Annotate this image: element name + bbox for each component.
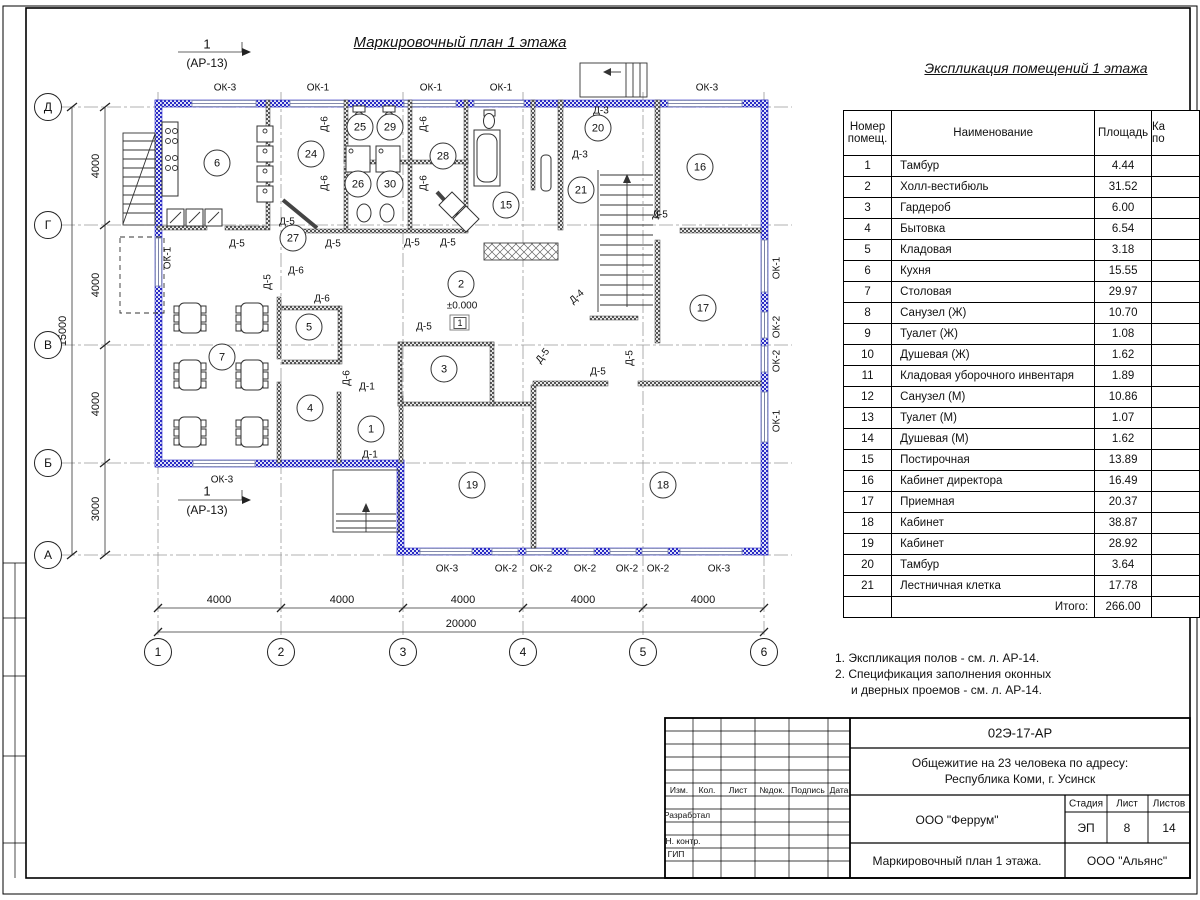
table-cell: 6 <box>844 261 892 282</box>
table-cell: 3 <box>844 198 892 219</box>
table-cell: 1.89 <box>1095 366 1152 387</box>
dim-label: 4000 <box>207 594 231 606</box>
table-row: 13Туалет (М)1.07 <box>844 408 1200 429</box>
door-label: Д-6 <box>320 116 331 132</box>
table-cell <box>1151 597 1199 618</box>
room-marker: 30 <box>377 171 404 198</box>
table-cell <box>1151 387 1199 408</box>
room-marker: 24 <box>298 141 325 168</box>
axis-bubble-col: 4 <box>509 638 537 666</box>
table-cell: 15.55 <box>1095 261 1152 282</box>
stair-21 <box>598 170 653 312</box>
axis-bubble-col: 2 <box>267 638 295 666</box>
org-name: ООО "Феррум" <box>916 813 999 827</box>
room-marker: 16 <box>687 154 714 181</box>
table-cell: 6.00 <box>1095 198 1152 219</box>
table-cell: 1.07 <box>1095 408 1152 429</box>
door-label: Д-5 <box>625 350 636 366</box>
table-cell: Кабинет <box>892 534 1095 555</box>
window-label: ОК-3 <box>214 83 237 94</box>
table-row: 12Санузел (М)10.86 <box>844 387 1200 408</box>
room-schedule-table: Номер помещ.НаименованиеПлощадьКа по1Там… <box>843 110 1200 618</box>
table-cell: Приемная <box>892 492 1095 513</box>
table-cell <box>1151 177 1199 198</box>
table-cell <box>1151 492 1199 513</box>
table-cell: 7 <box>844 282 892 303</box>
table-row: 6Кухня15.55 <box>844 261 1200 282</box>
section-mark-number: 1 <box>203 484 210 499</box>
room-marker: 6 <box>204 150 231 177</box>
axis-bubble-row: Д <box>34 93 62 121</box>
stamp-col-sign: Подпись <box>791 785 825 795</box>
window-label: ОК-1 <box>307 83 330 94</box>
floor-hatch-strip <box>484 243 558 260</box>
axis-bubble-col: 6 <box>750 638 778 666</box>
table-cell <box>1151 555 1199 576</box>
table-cell: Кухня <box>892 261 1095 282</box>
room-marker: 3 <box>431 356 458 383</box>
dim-label: 4000 <box>691 594 715 606</box>
window-label: ОК-2 <box>495 564 518 575</box>
stamp-row-gip: ГИП <box>668 849 685 859</box>
table-cell <box>1151 429 1199 450</box>
door-label: Д-5 <box>263 274 274 290</box>
table-row: 21Лестничная клетка17.78 <box>844 576 1200 597</box>
table-cell: Санузел (Ж) <box>892 303 1095 324</box>
axis-bubble-row: Б <box>34 449 62 477</box>
window-label: ОК-1 <box>772 257 783 280</box>
dim-label: 4000 <box>90 154 102 178</box>
table-cell: 4 <box>844 219 892 240</box>
table-cell: Тамбур <box>892 555 1095 576</box>
window-label: ОК-3 <box>696 83 719 94</box>
table-row: 1Тамбур4.44 <box>844 156 1200 177</box>
window-label: ОК-1 <box>772 410 783 433</box>
room-marker: 26 <box>345 171 372 198</box>
axis-bubble-row: В <box>34 331 62 359</box>
elevation-label: ±0.000 <box>447 301 478 312</box>
sheets-value: 14 <box>1162 821 1175 835</box>
door-label: Д-5 <box>325 239 341 250</box>
stage-label: Стадия <box>1069 799 1103 810</box>
total-label: Итого: <box>892 597 1095 618</box>
table-cell: 14 <box>844 429 892 450</box>
window-label: ОК-3 <box>436 564 459 575</box>
table-row: 14Душевая (М)1.62 <box>844 429 1200 450</box>
table-row: 11Кладовая уборочного инвентаря1.89 <box>844 366 1200 387</box>
table-cell <box>1151 408 1199 429</box>
table-cell: Гардероб <box>892 198 1095 219</box>
table-cell: 21 <box>844 576 892 597</box>
col-header-cut: Ка по <box>1151 111 1199 156</box>
notes: 1. Экспликация полов - см. л. АР-14. 2. … <box>835 650 1051 698</box>
table-cell: 13.89 <box>1095 450 1152 471</box>
axis-bubble-row: Г <box>34 211 62 239</box>
section-mark-number: 1 <box>203 37 210 52</box>
door-label: Д-5 <box>652 210 668 221</box>
room-marker: 15 <box>493 192 520 219</box>
col-header-name: Наименование <box>892 111 1095 156</box>
table-cell: Постирочная <box>892 450 1095 471</box>
note-line: и дверных проемов - см. л. АР-14. <box>835 682 1051 698</box>
door-label: Д-5 <box>229 239 245 250</box>
room-marker: 19 <box>459 472 486 499</box>
col-header-area: Площадь <box>1095 111 1152 156</box>
note-line: 2. Спецификация заполнения оконных <box>835 666 1051 682</box>
room-marker: 25 <box>347 114 374 141</box>
table-row: 19Кабинет28.92 <box>844 534 1200 555</box>
table-cell: Кабинет директора <box>892 471 1095 492</box>
table-cell <box>1151 450 1199 471</box>
table-cell <box>1151 366 1199 387</box>
schedule-title: Экспликация помещений 1 этажа <box>905 60 1167 76</box>
stamp-col-date: Дата <box>830 785 849 795</box>
table-cell: Душевая (Ж) <box>892 345 1095 366</box>
table-cell <box>1151 219 1199 240</box>
door-label: Д-6 <box>320 175 331 191</box>
dim-label: 3000 <box>90 497 102 521</box>
door-label: Д-1 <box>362 450 378 461</box>
table-cell <box>1151 198 1199 219</box>
room-marker: 17 <box>690 295 717 322</box>
stamp-col-izm: Изм. <box>670 785 688 795</box>
drawing-name: Маркировочный план 1 этажа. <box>872 854 1041 868</box>
door-label: Д-6 <box>314 294 330 305</box>
table-cell: 11 <box>844 366 892 387</box>
table-cell: 38.87 <box>1095 513 1152 534</box>
table-cell: 16 <box>844 471 892 492</box>
project-name-line: Республика Коми, г. Усинск <box>945 772 1096 786</box>
table-cell: 15 <box>844 450 892 471</box>
table-cell: 8 <box>844 303 892 324</box>
table-row: 18Кабинет38.87 <box>844 513 1200 534</box>
table-cell <box>1151 156 1199 177</box>
plan-title: Маркировочный план 1 этажа <box>340 34 580 51</box>
table-cell: 20.37 <box>1095 492 1152 513</box>
sheet-value: 8 <box>1124 821 1131 835</box>
drawing-sheet: { "titles": { "plan": "Маркировочный пла… <box>0 0 1200 900</box>
org2-name: ООО "Альянс" <box>1087 854 1167 868</box>
porch-bottom <box>333 470 399 532</box>
table-row: 10Душевая (Ж)1.62 <box>844 345 1200 366</box>
table-cell <box>1151 576 1199 597</box>
table-cell: 6.54 <box>1095 219 1152 240</box>
stage-value: ЭП <box>1077 821 1094 835</box>
sheet-label: Лист <box>1116 799 1138 810</box>
axis-bubble-col: 1 <box>144 638 172 666</box>
table-cell: 31.52 <box>1095 177 1152 198</box>
table-cell: 18 <box>844 513 892 534</box>
room-marker: 7 <box>209 344 236 371</box>
table-cell: Туалет (М) <box>892 408 1095 429</box>
dining-tables <box>174 303 268 447</box>
table-cell: 1.08 <box>1095 324 1152 345</box>
table-cell <box>1151 471 1199 492</box>
table-row: 3Гардероб6.00 <box>844 198 1200 219</box>
table-cell: Душевая (М) <box>892 429 1095 450</box>
table-cell: Столовая <box>892 282 1095 303</box>
room-marker: 21 <box>568 177 595 204</box>
axis-bubble-col: 5 <box>629 638 657 666</box>
table-cell: 9 <box>844 324 892 345</box>
table-cell: 10.70 <box>1095 303 1152 324</box>
document-number: 02Э-17-АР <box>988 726 1052 741</box>
dim-label: 4000 <box>451 594 475 606</box>
table-cell <box>1151 534 1199 555</box>
stamp-row-developer: Разработал <box>664 810 710 820</box>
table-cell: Туалет (Ж) <box>892 324 1095 345</box>
room-marker: 18 <box>650 472 677 499</box>
table-cell <box>1151 261 1199 282</box>
door-label: Д-6 <box>419 116 430 132</box>
door-label: Д-6 <box>419 175 430 191</box>
table-total-row: Итого:266.00 <box>844 597 1200 618</box>
table-cell: 12 <box>844 387 892 408</box>
porch-top <box>580 63 647 97</box>
table-row: 9Туалет (Ж)1.08 <box>844 324 1200 345</box>
door-label: Д-5 <box>590 367 606 378</box>
table-row: 5Кладовая3.18 <box>844 240 1200 261</box>
room-marker: 28 <box>430 143 457 170</box>
room-marker: 4 <box>297 395 324 422</box>
project-name-line: Общежитие на 23 человека по адресу: <box>912 756 1128 770</box>
table-cell: 20 <box>844 555 892 576</box>
window-label: ОК-3 <box>708 564 731 575</box>
table-cell: 10 <box>844 345 892 366</box>
table-cell: 1.62 <box>1095 345 1152 366</box>
window-label: ОК-2 <box>616 564 639 575</box>
dim-label: 4000 <box>90 392 102 416</box>
table-cell: 5 <box>844 240 892 261</box>
door-label: Д-3 <box>572 150 588 161</box>
table-cell: 4.44 <box>1095 156 1152 177</box>
table-cell: 19 <box>844 534 892 555</box>
door-label: Д-6 <box>342 370 353 386</box>
room-marker: 1 <box>358 416 385 443</box>
room-marker: 5 <box>296 314 323 341</box>
table-cell <box>1151 324 1199 345</box>
axis-bubble-col: 3 <box>389 638 417 666</box>
table-row: 8Санузел (Ж)10.70 <box>844 303 1200 324</box>
total-value: 266.00 <box>1095 597 1152 618</box>
section-mark-ref: (АР-13) <box>186 503 227 517</box>
table-cell: 10.86 <box>1095 387 1152 408</box>
note-line: 1. Экспликация полов - см. л. АР-14. <box>835 650 1051 666</box>
table-cell: 1.62 <box>1095 429 1152 450</box>
table-cell: 13 <box>844 408 892 429</box>
door-label: Д-6 <box>288 266 304 277</box>
window-label: ОК-3 <box>211 475 234 486</box>
door-label: Д-5 <box>404 238 420 249</box>
dim-label: 4000 <box>90 273 102 297</box>
table-cell: 28.92 <box>1095 534 1152 555</box>
window-label: ОК-1 <box>163 247 174 270</box>
dim-label: 4000 <box>330 594 354 606</box>
door-label: Д-5 <box>440 238 456 249</box>
window-label: ОК-2 <box>772 350 783 373</box>
table-row: 16Кабинет директора16.49 <box>844 471 1200 492</box>
window-label: ОК-1 <box>420 83 443 94</box>
table-row: 7Столовая29.97 <box>844 282 1200 303</box>
window-label: ОК-1 <box>490 83 513 94</box>
table-cell: 2 <box>844 177 892 198</box>
table-row: 15Постирочная13.89 <box>844 450 1200 471</box>
table-cell: 3.18 <box>1095 240 1152 261</box>
table-cell: 29.97 <box>1095 282 1152 303</box>
window-label: ОК-2 <box>574 564 597 575</box>
table-cell <box>1151 513 1199 534</box>
table-cell: 17.78 <box>1095 576 1152 597</box>
room-marker: 29 <box>377 114 404 141</box>
stamp-col-list: Лист <box>729 785 747 795</box>
floor-type-mark: 1 <box>453 317 466 329</box>
table-cell: Кладовая <box>892 240 1095 261</box>
stamp-col-kol: Кол. <box>699 785 716 795</box>
window-label: ОК-2 <box>772 316 783 339</box>
table-cell: 3.64 <box>1095 555 1152 576</box>
table-cell: Холл-вестибюль <box>892 177 1095 198</box>
table-cell <box>1151 240 1199 261</box>
table-cell: 17 <box>844 492 892 513</box>
table-row: 20Тамбур3.64 <box>844 555 1200 576</box>
table-row: 4Бытовка6.54 <box>844 219 1200 240</box>
table-cell: Кладовая уборочного инвентаря <box>892 366 1095 387</box>
table-cell <box>1151 282 1199 303</box>
window-label: ОК-2 <box>647 564 670 575</box>
door-label: Д-1 <box>359 382 375 393</box>
table-cell <box>844 597 892 618</box>
sheets-label: Листов <box>1153 799 1186 810</box>
room-marker: 27 <box>280 225 307 252</box>
table-cell: Лестничная клетка <box>892 576 1095 597</box>
axis-bubble-row: А <box>34 541 62 569</box>
table-row: 17Приемная20.37 <box>844 492 1200 513</box>
dim-label: 20000 <box>446 618 477 630</box>
table-cell: Санузел (М) <box>892 387 1095 408</box>
door-label: Д-5 <box>416 322 432 333</box>
col-header-number: Номер помещ. <box>844 111 892 156</box>
section-mark-ref: (АР-13) <box>186 56 227 70</box>
table-cell: Бытовка <box>892 219 1095 240</box>
dim-label: 4000 <box>571 594 595 606</box>
room-marker: 20 <box>585 115 612 142</box>
room-marker: 2 <box>448 271 475 298</box>
window-label: ОК-2 <box>530 564 553 575</box>
stamp-col-doc: №док. <box>760 785 785 795</box>
table-cell: Тамбур <box>892 156 1095 177</box>
table-row: 2Холл-вестибюль31.52 <box>844 177 1200 198</box>
table-cell <box>1151 345 1199 366</box>
stamp-row-ncontrol: Н. контр. <box>665 836 700 846</box>
table-cell <box>1151 303 1199 324</box>
table-cell: Кабинет <box>892 513 1095 534</box>
table-cell: 16.49 <box>1095 471 1152 492</box>
table-cell: 1 <box>844 156 892 177</box>
